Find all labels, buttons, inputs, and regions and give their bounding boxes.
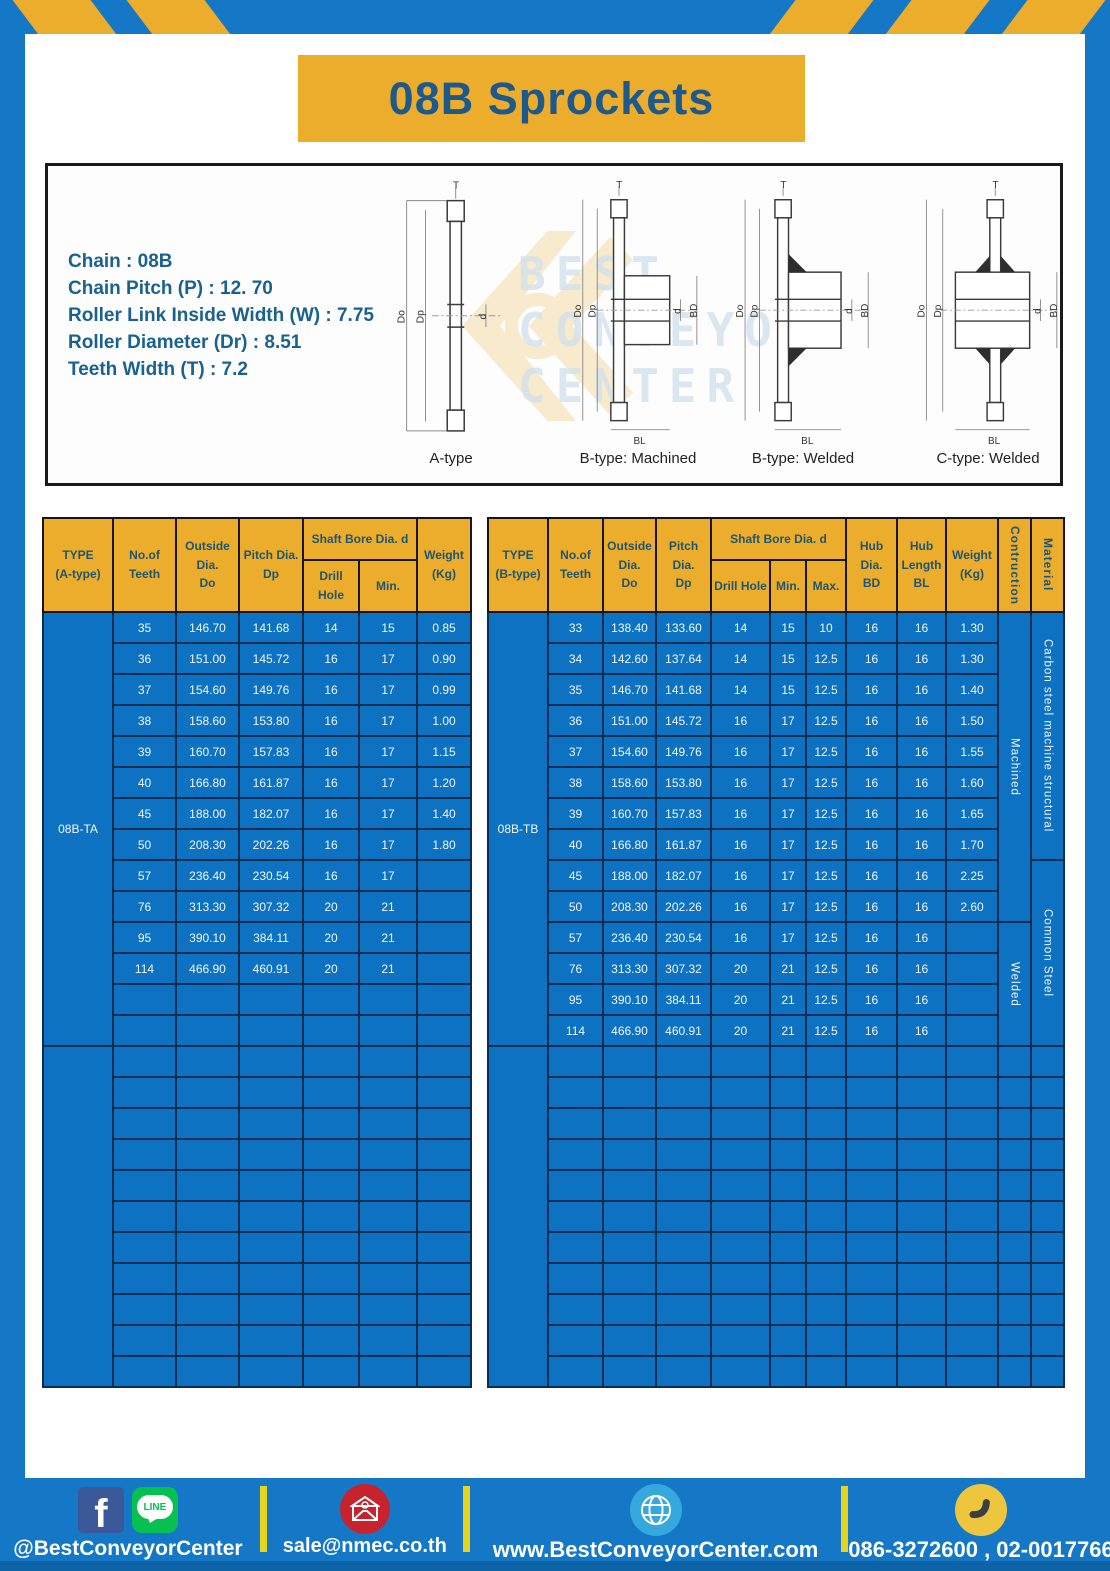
data-cell: 313.30 <box>176 891 239 922</box>
data-cell: 12.5 <box>806 891 846 922</box>
data-cell <box>303 1170 359 1201</box>
data-cell <box>359 1108 417 1139</box>
data-cell <box>417 1077 471 1108</box>
data-cell <box>711 1201 770 1232</box>
data-cell <box>548 1139 603 1170</box>
data-cell <box>239 1294 303 1325</box>
data-cell <box>998 1263 1031 1294</box>
data-cell <box>770 1108 806 1139</box>
data-cell <box>359 1170 417 1201</box>
data-cell: 14 <box>711 643 770 674</box>
data-cell: 149.76 <box>239 674 303 705</box>
data-cell: 17 <box>359 829 417 860</box>
header-outside-dia: OutsideDia.Do <box>603 518 656 612</box>
data-cell: 16 <box>897 829 946 860</box>
data-cell <box>113 1139 176 1170</box>
header-weight: Weight(Kg) <box>946 518 998 612</box>
data-cell <box>359 1325 417 1356</box>
data-cell: 188.00 <box>176 798 239 829</box>
data-cell: 138.40 <box>603 612 656 643</box>
header-pitch-dia: Pitch Dia.Dp <box>239 518 303 612</box>
data-cell: 17 <box>359 643 417 674</box>
data-cell: 460.91 <box>239 953 303 984</box>
data-cell <box>113 1077 176 1108</box>
data-cell: 16 <box>897 767 946 798</box>
data-cell <box>998 1294 1031 1325</box>
header-type: TYPE(A-type) <box>43 518 113 612</box>
table-row: 40166.80161.87161712.516161.70 <box>488 829 1064 860</box>
data-cell: 38 <box>113 705 176 736</box>
data-cell: 17 <box>359 798 417 829</box>
data-cell: 76 <box>548 953 603 984</box>
data-cell: 17 <box>359 674 417 705</box>
data-cell: 20 <box>711 1015 770 1046</box>
data-cell: 16 <box>846 705 897 736</box>
drawing-b-type-machined: T Do Dp d BD BL <box>553 178 723 446</box>
data-cell: 38 <box>548 767 603 798</box>
data-cell: 137.64 <box>656 643 711 674</box>
data-cell <box>656 1356 711 1387</box>
data-cell <box>113 984 176 1015</box>
data-cell: 208.30 <box>603 891 656 922</box>
data-cell: 12.5 <box>806 736 846 767</box>
data-cell: 39 <box>548 798 603 829</box>
header-construction: Contruction <box>998 518 1031 612</box>
header-drill-hole: Drill Hole <box>711 560 770 612</box>
data-cell <box>417 1294 471 1325</box>
data-cell: 40 <box>113 767 176 798</box>
type-empty-cell <box>43 1046 113 1387</box>
data-cell: 17 <box>770 798 806 829</box>
data-cell <box>946 1263 998 1294</box>
data-cell: 146.70 <box>176 612 239 643</box>
data-cell <box>806 1139 846 1170</box>
drawing-a-type: T Do Dp d <box>376 178 526 446</box>
data-cell <box>239 1015 303 1046</box>
data-cell: 16 <box>846 798 897 829</box>
data-cell: 160.70 <box>603 798 656 829</box>
data-cell: 17 <box>770 860 806 891</box>
table-row: 95390.10384.11202112.51616 <box>488 984 1064 1015</box>
data-cell: 15 <box>770 612 806 643</box>
data-cell <box>770 1263 806 1294</box>
data-cell <box>176 1015 239 1046</box>
data-cell <box>1031 1108 1064 1139</box>
header-min: Min. <box>359 560 417 612</box>
data-cell: 16 <box>711 767 770 798</box>
data-cell <box>656 1232 711 1263</box>
data-cell <box>806 1294 846 1325</box>
data-cell: 17 <box>359 767 417 798</box>
data-cell <box>656 1325 711 1356</box>
dim-label-BD: BD <box>860 304 871 318</box>
spec-line: Roller Link Inside Width (W) : 7.75 <box>68 302 374 329</box>
data-cell: 16 <box>711 736 770 767</box>
facebook-icon: f <box>78 1487 124 1533</box>
dim-label-Dp: Dp <box>933 304 944 317</box>
data-cell: 202.26 <box>239 829 303 860</box>
table-row: 114466.90460.91202112.51616 <box>488 1015 1064 1046</box>
data-cell <box>806 1201 846 1232</box>
data-cell: 16 <box>897 798 946 829</box>
data-cell: 12.5 <box>806 984 846 1015</box>
data-cell <box>806 1263 846 1294</box>
data-cell: 141.68 <box>656 674 711 705</box>
data-cell <box>176 1263 239 1294</box>
data-cell <box>603 1139 656 1170</box>
data-cell <box>656 1077 711 1108</box>
data-cell <box>846 1139 897 1170</box>
data-cell: 158.60 <box>603 767 656 798</box>
data-cell: 16 <box>897 705 946 736</box>
data-cell: 1.40 <box>946 674 998 705</box>
table-row: 39160.70157.83161712.516161.65 <box>488 798 1064 829</box>
data-cell <box>176 1139 239 1170</box>
construction-cell: Machined <box>998 612 1031 922</box>
data-cell: 14 <box>303 612 359 643</box>
data-cell <box>239 1325 303 1356</box>
data-cell <box>603 1232 656 1263</box>
data-cell: 1.50 <box>946 705 998 736</box>
data-cell: 154.60 <box>176 674 239 705</box>
data-cell <box>770 1170 806 1201</box>
data-cell: 17 <box>770 891 806 922</box>
data-cell <box>897 1263 946 1294</box>
footer-divider <box>260 1486 267 1552</box>
data-cell <box>303 1263 359 1294</box>
data-cell: 17 <box>770 829 806 860</box>
empty-row <box>488 1294 1064 1325</box>
data-cell <box>897 1108 946 1139</box>
data-cell <box>711 1294 770 1325</box>
data-cell <box>603 1201 656 1232</box>
data-cell: 166.80 <box>176 767 239 798</box>
data-cell <box>303 1108 359 1139</box>
footer-facebook-section: f LINE @BestConveyorCenter <box>0 1478 256 1561</box>
data-cell: 0.99 <box>417 674 471 705</box>
data-cell <box>548 1046 603 1077</box>
data-cell <box>113 1201 176 1232</box>
data-cell: 37 <box>548 736 603 767</box>
data-cell <box>239 1139 303 1170</box>
data-cell: 95 <box>548 984 603 1015</box>
data-cell <box>806 1325 846 1356</box>
data-cell <box>417 891 471 922</box>
data-cell <box>846 1325 897 1356</box>
header-drill-hole: Drill Hole <box>303 560 359 612</box>
data-cell <box>897 1356 946 1387</box>
data-cell: 17 <box>770 736 806 767</box>
caption-b-type-machined: B-type: Machined <box>580 450 697 467</box>
header-max: Max. <box>806 560 846 612</box>
data-cell <box>303 1325 359 1356</box>
data-cell: 114 <box>548 1015 603 1046</box>
dim-label-Do: Do <box>735 304 746 317</box>
data-cell: 16 <box>303 674 359 705</box>
title-banner: 08B Sprockets <box>298 55 805 142</box>
data-cell <box>998 1325 1031 1356</box>
data-cell: 466.90 <box>176 953 239 984</box>
data-cell <box>846 1201 897 1232</box>
data-cell <box>303 1201 359 1232</box>
data-cell: 21 <box>770 984 806 1015</box>
data-cell <box>176 1356 239 1387</box>
data-cell <box>998 1201 1031 1232</box>
type-empty-cell <box>488 1046 548 1387</box>
dim-label-BL: BL <box>988 436 1001 446</box>
data-cell: 182.07 <box>239 798 303 829</box>
data-cell <box>946 953 998 984</box>
data-cell <box>897 1139 946 1170</box>
data-cell: 95 <box>113 922 176 953</box>
header-shaft-bore: Shaft Bore Dia. d <box>711 518 846 560</box>
data-cell <box>417 1108 471 1139</box>
data-cell: 16 <box>897 736 946 767</box>
table-row: 34142.60137.64141512.516161.30 <box>488 643 1064 674</box>
data-cell <box>846 1046 897 1077</box>
data-cell: 14 <box>711 674 770 705</box>
data-cell: 16 <box>711 860 770 891</box>
data-cell: 10 <box>806 612 846 643</box>
empty-row <box>43 1046 471 1077</box>
data-cell: 208.30 <box>176 829 239 860</box>
data-cell <box>113 1294 176 1325</box>
data-cell: 236.40 <box>176 860 239 891</box>
data-cell: 16 <box>846 922 897 953</box>
data-cell <box>770 1139 806 1170</box>
data-cell: 20 <box>711 984 770 1015</box>
dim-label-Dp: Dp <box>750 304 761 317</box>
line-bubble-tail <box>140 1517 159 1529</box>
data-cell <box>897 1201 946 1232</box>
spec-line: Chain Pitch (P) : 12. 70 <box>68 275 374 302</box>
header-min: Min. <box>770 560 806 612</box>
data-cell <box>846 1077 897 1108</box>
data-cell <box>846 1356 897 1387</box>
data-cell <box>711 1232 770 1263</box>
data-cell: 50 <box>113 829 176 860</box>
data-cell <box>303 984 359 1015</box>
data-cell: 15 <box>770 674 806 705</box>
data-cell <box>303 1139 359 1170</box>
data-cell: 16 <box>897 891 946 922</box>
data-cell <box>359 1356 417 1387</box>
footer-divider <box>463 1486 470 1552</box>
data-cell: 12.5 <box>806 829 846 860</box>
data-cell <box>113 1356 176 1387</box>
data-cell <box>806 1077 846 1108</box>
caption-a-type: A-type <box>429 450 472 467</box>
mail-icon <box>340 1484 390 1534</box>
data-cell <box>417 1015 471 1046</box>
data-cell <box>711 1263 770 1294</box>
drawing-b-type-welded: T Do Dp d BD BL <box>713 178 893 446</box>
data-cell <box>113 1232 176 1263</box>
data-cell <box>239 1108 303 1139</box>
chain-specs: Chain : 08B Chain Pitch (P) : 12. 70 Rol… <box>68 248 374 383</box>
data-cell: 145.72 <box>656 705 711 736</box>
data-cell: 149.76 <box>656 736 711 767</box>
table-b-type: TYPE(B-type) No.ofTeeth OutsideDia.Do Pi… <box>487 517 1065 1388</box>
data-cell <box>417 1046 471 1077</box>
table-row: 08B-TA35146.70141.6814150.85 <box>43 612 471 643</box>
data-cell <box>239 1201 303 1232</box>
data-cell <box>770 1325 806 1356</box>
footer-website-section: www.BestConveyorCenter.com <box>474 1478 838 1563</box>
data-cell <box>946 984 998 1015</box>
data-cell <box>417 1325 471 1356</box>
data-cell <box>806 1108 846 1139</box>
diagonal-stripe <box>122 0 235 34</box>
data-cell <box>603 1108 656 1139</box>
data-cell <box>846 1232 897 1263</box>
data-cell <box>998 1108 1031 1139</box>
left-frame <box>0 0 25 1571</box>
data-cell <box>656 1201 711 1232</box>
data-cell: 16 <box>303 736 359 767</box>
data-cell: 12.5 <box>806 798 846 829</box>
data-cell <box>113 1170 176 1201</box>
table-row: 36151.00145.72161712.516161.50 <box>488 705 1064 736</box>
data-cell: 151.00 <box>176 643 239 674</box>
data-cell <box>113 1325 176 1356</box>
globe-icon <box>630 1484 682 1536</box>
data-cell <box>239 984 303 1015</box>
dim-label-T: T <box>993 180 999 191</box>
data-cell: 390.10 <box>603 984 656 1015</box>
data-cell: 466.90 <box>603 1015 656 1046</box>
dim-label-T: T <box>453 180 460 191</box>
data-cell: 16 <box>897 674 946 705</box>
header-shaft-bore: Shaft Bore Dia. d <box>303 518 417 560</box>
table-row: 38158.60153.80161712.516161.60 <box>488 767 1064 798</box>
data-cell: 39 <box>113 736 176 767</box>
diagonal-stripe <box>997 0 1110 34</box>
data-cell <box>946 1108 998 1139</box>
type-label-cell: 08B-TB <box>488 612 548 1046</box>
data-cell <box>656 1139 711 1170</box>
data-cell <box>1031 1170 1064 1201</box>
data-cell <box>417 1170 471 1201</box>
data-cell <box>846 1294 897 1325</box>
data-cell <box>417 984 471 1015</box>
data-cell: 16 <box>303 643 359 674</box>
data-cell <box>806 1356 846 1387</box>
dim-label-T: T <box>616 180 622 191</box>
header-material: Material <box>1031 518 1064 612</box>
data-cell: 153.80 <box>239 705 303 736</box>
data-cell <box>711 1139 770 1170</box>
data-cell <box>1031 1201 1064 1232</box>
data-cell: 16 <box>897 860 946 891</box>
data-cell <box>656 1108 711 1139</box>
data-cell: 15 <box>359 612 417 643</box>
data-cell: 21 <box>770 1015 806 1046</box>
data-cell: 20 <box>303 922 359 953</box>
data-cell <box>176 1077 239 1108</box>
data-cell: 35 <box>548 674 603 705</box>
empty-row <box>488 1232 1064 1263</box>
data-cell <box>359 1294 417 1325</box>
data-cell <box>239 1046 303 1077</box>
header-weight: Weight(Kg) <box>417 518 471 612</box>
data-cell <box>303 1232 359 1263</box>
data-cell: 230.54 <box>656 922 711 953</box>
data-cell: 20 <box>711 953 770 984</box>
data-cell: 1.70 <box>946 829 998 860</box>
data-cell <box>656 1046 711 1077</box>
data-cell <box>417 1232 471 1263</box>
data-cell <box>846 1170 897 1201</box>
data-cell <box>656 1294 711 1325</box>
data-cell: 16 <box>846 829 897 860</box>
data-cell: 12.5 <box>806 922 846 953</box>
data-cell: 17 <box>359 705 417 736</box>
data-cell: 45 <box>548 860 603 891</box>
material-cell: Carbon steel machine structural <box>1031 612 1064 860</box>
data-cell: 160.70 <box>176 736 239 767</box>
data-cell <box>656 1263 711 1294</box>
data-cell: 17 <box>359 860 417 891</box>
empty-row <box>488 1046 1064 1077</box>
data-cell <box>176 1232 239 1263</box>
data-cell: 16 <box>711 922 770 953</box>
dim-label-d: d <box>1033 308 1044 314</box>
spec-line: Teeth Width (T) : 7.2 <box>68 356 374 383</box>
data-cell: 460.91 <box>656 1015 711 1046</box>
data-cell: 188.00 <box>603 860 656 891</box>
data-cell <box>176 984 239 1015</box>
data-cell: 0.90 <box>417 643 471 674</box>
footer-social-icons: f LINE <box>78 1484 178 1536</box>
data-cell <box>359 1263 417 1294</box>
data-cell <box>656 1170 711 1201</box>
data-cell: 154.60 <box>603 736 656 767</box>
dim-label-d: d <box>844 308 855 314</box>
data-cell: 16 <box>846 612 897 643</box>
data-cell <box>113 1046 176 1077</box>
data-cell <box>303 1294 359 1325</box>
data-cell: 1.65 <box>946 798 998 829</box>
data-cell <box>303 1015 359 1046</box>
data-cell <box>998 1356 1031 1387</box>
data-cell: 16 <box>846 767 897 798</box>
data-cell <box>417 1139 471 1170</box>
phone-icon <box>955 1484 1007 1536</box>
data-cell <box>548 1325 603 1356</box>
data-cell <box>711 1077 770 1108</box>
footer-phone-section: 086-3272600 , 02-0017766 <box>852 1478 1110 1563</box>
diagonal-stripe <box>8 0 121 34</box>
data-cell <box>1031 1294 1064 1325</box>
data-cell: 141.68 <box>239 612 303 643</box>
data-cell: 1.40 <box>417 798 471 829</box>
data-cell <box>998 1232 1031 1263</box>
header-teeth: No.ofTeeth <box>113 518 176 612</box>
page-title: 08B Sprockets <box>389 73 715 125</box>
data-cell <box>603 1263 656 1294</box>
diagonal-stripe <box>765 0 878 34</box>
data-cell <box>548 1108 603 1139</box>
data-cell: 16 <box>897 643 946 674</box>
data-cell <box>603 1046 656 1077</box>
data-cell: 16 <box>846 953 897 984</box>
line-badge: LINE <box>137 1495 173 1519</box>
data-cell: 45 <box>113 798 176 829</box>
data-cell <box>239 1077 303 1108</box>
data-cell <box>806 1046 846 1077</box>
dim-label-BD: BD <box>1049 304 1060 318</box>
